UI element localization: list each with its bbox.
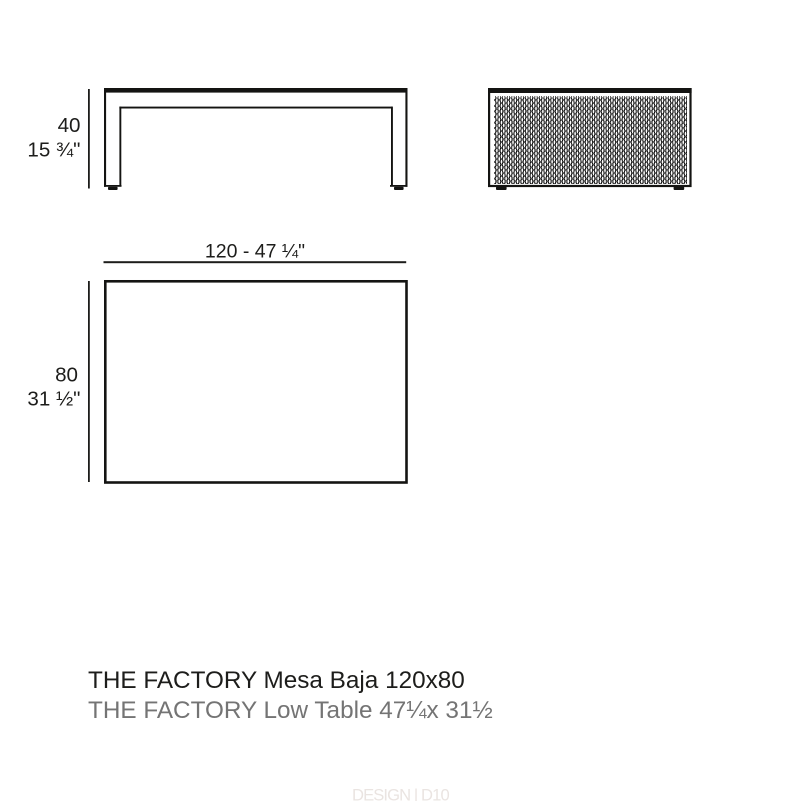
svg-text:40: 40 — [58, 114, 81, 137]
svg-text:80: 80 — [55, 364, 78, 387]
svg-text:15 ¾": 15 ¾" — [27, 139, 80, 162]
svg-text:DESIGN | D10: DESIGN | D10 — [352, 785, 449, 801]
svg-text:120 - 47 ¼": 120 - 47 ¼" — [205, 241, 305, 263]
svg-text:THE FACTORY Low Table 47¼x 31½: THE FACTORY Low Table 47¼x 31½ — [88, 697, 493, 724]
svg-text:31 ½": 31 ½" — [27, 388, 80, 411]
svg-text:THE FACTORY Mesa Baja 120x80: THE FACTORY Mesa Baja 120x80 — [88, 667, 465, 694]
